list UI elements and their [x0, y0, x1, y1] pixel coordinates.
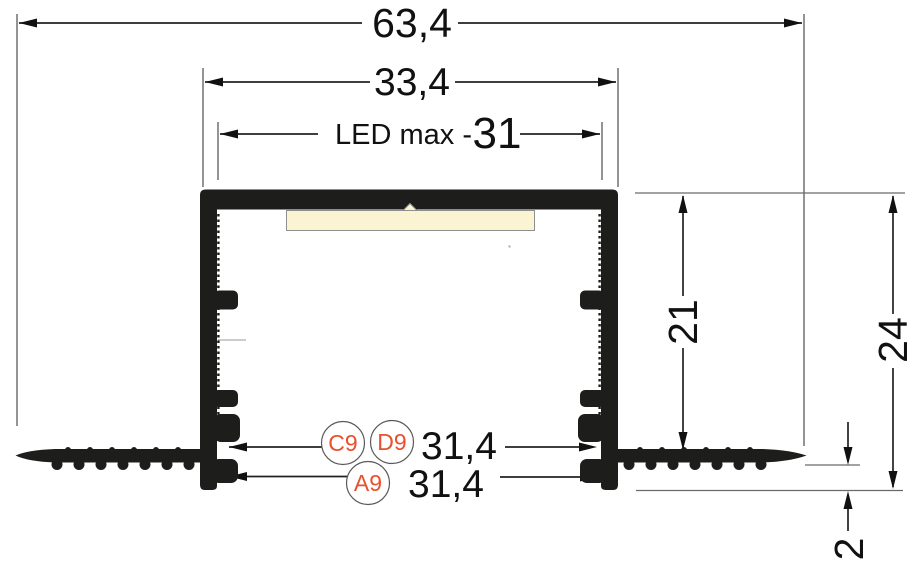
arrowhead [598, 78, 616, 87]
profile-cross-section-drawing: 63,4 33,4 LED max - 31 21 24 2 31,4 31,4… [0, 0, 917, 575]
dim-inner-depth-label: 21 [660, 299, 706, 345]
arrowhead [679, 195, 688, 213]
dim-notch-lower-label: 31,4 [408, 463, 484, 506]
nub-right-upper [580, 291, 604, 310]
extension-lines [17, 14, 905, 491]
led-strip [287, 211, 535, 231]
arrowhead [784, 19, 802, 28]
dim-body-width-label: 33,4 [374, 61, 450, 104]
dim-led-max-label: LED max - [335, 119, 472, 151]
arrowhead [229, 443, 247, 452]
foot-left [212, 459, 238, 483]
arrowhead [889, 471, 898, 489]
nub-right-mid [580, 390, 604, 407]
profile-right-wall [601, 200, 618, 490]
hook-left [214, 414, 240, 442]
speck [508, 245, 510, 247]
arrowhead [579, 443, 597, 452]
arrowhead [205, 78, 223, 87]
nub-left-mid [214, 390, 238, 407]
technical-drawing-page: 63,4 33,4 LED max - 31 21 24 2 31,4 31,4… [0, 0, 917, 575]
flange-right [618, 449, 807, 463]
callout-label-c9: C9 [328, 430, 357, 456]
callout-label-a9: A9 [354, 470, 382, 496]
arrowhead [889, 195, 898, 213]
foot-right [580, 459, 606, 483]
dim-notch-upper-label: 31,4 [421, 425, 497, 468]
arrowhead [220, 130, 238, 139]
dim-led-max-value: 31 [473, 109, 522, 158]
dim-total-depth-label: 24 [870, 317, 916, 363]
arrowhead [582, 130, 600, 139]
nub-left-upper [214, 291, 238, 310]
profile-left-wall [200, 200, 217, 490]
callout-label-d9: D9 [377, 429, 406, 455]
dimension-labels: 63,4 33,4 LED max - 31 21 24 2 31,4 31,4 [335, 0, 916, 560]
dim-overall-width-label: 63,4 [372, 0, 452, 46]
arrowhead [19, 19, 37, 28]
arrowhead [844, 447, 853, 465]
hook-right [578, 414, 604, 442]
dim-edge-thickness-label: 2 [826, 538, 872, 561]
flange-left [16, 449, 201, 463]
arrowhead [844, 491, 853, 509]
